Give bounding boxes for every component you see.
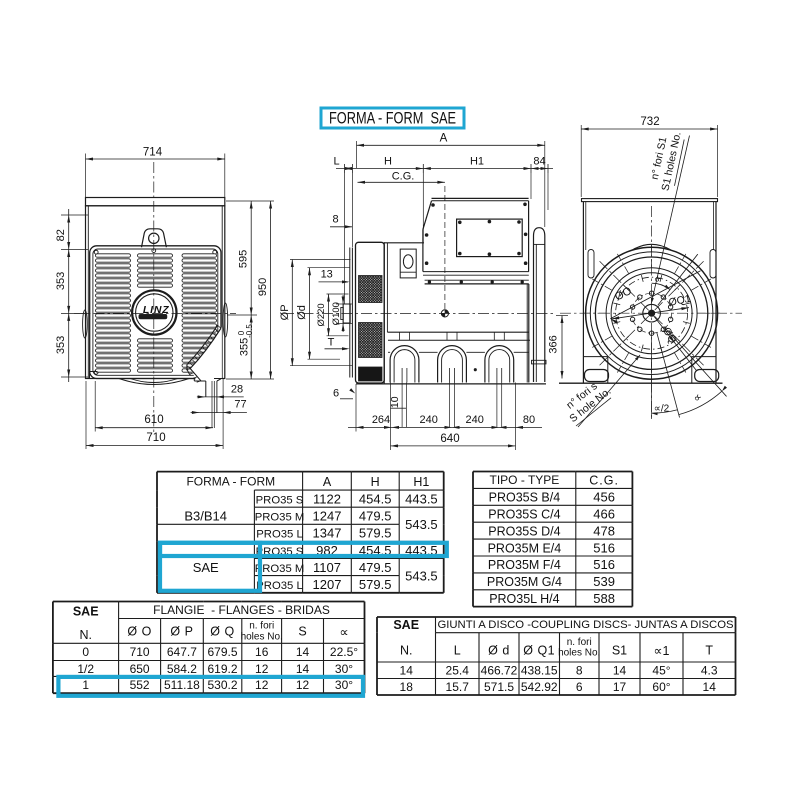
- svg-text:6: 6: [576, 680, 583, 694]
- svg-text:588: 588: [593, 591, 615, 606]
- svg-text:PRO35 L: PRO35 L: [256, 529, 302, 541]
- svg-text:SAE: SAE: [393, 618, 419, 632]
- svg-text:511.18: 511.18: [164, 678, 200, 692]
- svg-text:N.: N.: [79, 628, 92, 642]
- svg-text:456: 456: [593, 490, 615, 505]
- svg-text:holes No.: holes No.: [558, 648, 600, 659]
- svg-text:714: 714: [143, 147, 163, 159]
- svg-text:FORMA - FORM: FORMA - FORM: [186, 474, 275, 488]
- svg-text:Ø O: Ø O: [127, 624, 151, 638]
- svg-text:∝/2: ∝/2: [654, 404, 670, 415]
- svg-text:H: H: [371, 475, 380, 489]
- svg-text:950: 950: [257, 278, 269, 296]
- svg-text:PRO35L H/4: PRO35L H/4: [489, 592, 559, 606]
- svg-text:579.5: 579.5: [359, 577, 392, 592]
- svg-text:GIUNTI A DISCO -COUPLING DISCS: GIUNTI A DISCO -COUPLING DISCS- JUNTAS A…: [437, 619, 734, 631]
- svg-text:579.5: 579.5: [359, 526, 392, 541]
- svg-text:30°: 30°: [335, 678, 353, 692]
- svg-text:619.2: 619.2: [207, 662, 237, 676]
- svg-text:Ø220: Ø220: [316, 303, 327, 326]
- svg-text:516: 516: [593, 540, 615, 555]
- svg-text:14: 14: [296, 645, 310, 659]
- svg-text:1/2: 1/2: [77, 662, 94, 676]
- svg-text:571.5: 571.5: [484, 680, 514, 694]
- svg-text:60°: 60°: [652, 680, 670, 694]
- svg-text:0: 0: [82, 645, 89, 659]
- svg-text:6: 6: [333, 387, 339, 399]
- svg-text:640: 640: [440, 433, 459, 445]
- svg-text:PRO35M F/4: PRO35M F/4: [488, 558, 561, 572]
- svg-text:12: 12: [255, 678, 269, 692]
- svg-text:353: 353: [55, 272, 67, 290]
- svg-text:PRO35S C/4: PRO35S C/4: [488, 508, 560, 522]
- svg-text:8: 8: [332, 213, 338, 225]
- svg-text:L: L: [454, 644, 461, 658]
- svg-text:H: H: [384, 156, 392, 168]
- svg-text:1207: 1207: [313, 577, 342, 592]
- svg-text:n. fori: n. fori: [249, 621, 274, 632]
- svg-text:14: 14: [613, 663, 627, 677]
- svg-text:543.5: 543.5: [405, 517, 438, 532]
- svg-text:Ø100: Ø100: [331, 302, 342, 325]
- svg-text:552: 552: [130, 678, 150, 692]
- svg-text:542.92: 542.92: [521, 680, 558, 694]
- svg-text:∝1: ∝1: [654, 644, 670, 658]
- svg-text:466: 466: [593, 507, 615, 522]
- svg-text:14: 14: [400, 663, 414, 677]
- svg-text:12: 12: [255, 662, 269, 676]
- svg-text:PRO35S D/4: PRO35S D/4: [488, 524, 560, 538]
- svg-text:355: 355: [239, 338, 251, 356]
- svg-text:539: 539: [593, 574, 615, 589]
- svg-text:FLANGIE - FLANGES - BRIDAS: FLANGIE - FLANGES - BRIDAS: [153, 603, 330, 617]
- svg-text:B3/B14: B3/B14: [184, 509, 227, 524]
- svg-text:H1: H1: [470, 156, 484, 168]
- svg-text:240: 240: [466, 414, 484, 426]
- svg-text:ØP: ØP: [279, 304, 291, 320]
- svg-text:C.G.: C.G.: [589, 474, 619, 488]
- svg-text:PRO35M G/4: PRO35M G/4: [487, 575, 562, 589]
- svg-text:650: 650: [130, 662, 150, 676]
- svg-text:264: 264: [372, 414, 390, 426]
- svg-text:Ø Q: Ø Q: [210, 624, 234, 638]
- svg-text:T: T: [705, 644, 713, 658]
- svg-text:14: 14: [703, 680, 717, 694]
- svg-text:13: 13: [321, 268, 333, 280]
- svg-text:478: 478: [593, 523, 615, 538]
- svg-text:SAE: SAE: [73, 604, 99, 618]
- svg-text:Ø P: Ø P: [170, 624, 193, 638]
- svg-text:PRO35M E/4: PRO35M E/4: [488, 541, 562, 555]
- svg-text:A: A: [440, 133, 448, 145]
- svg-text:1122: 1122: [313, 492, 341, 507]
- svg-text:479.5: 479.5: [359, 560, 392, 575]
- svg-text:PRO35 M: PRO35 M: [255, 512, 305, 524]
- svg-text:1: 1: [82, 678, 89, 692]
- svg-text:FORMA - FORM SAE: FORMA - FORM SAE: [329, 110, 456, 128]
- svg-text:TIPO - TYPE: TIPO - TYPE: [490, 473, 560, 487]
- svg-text:240: 240: [420, 414, 438, 426]
- svg-text:PRO35 L: PRO35 L: [256, 580, 302, 592]
- svg-text:82: 82: [55, 229, 67, 241]
- svg-text:679.5: 679.5: [207, 645, 237, 659]
- svg-text:4.3: 4.3: [701, 663, 718, 677]
- svg-text:366: 366: [548, 335, 560, 353]
- svg-text:30°: 30°: [335, 662, 353, 676]
- svg-text:479.5: 479.5: [359, 509, 392, 524]
- svg-text:holes No.: holes No.: [241, 631, 283, 642]
- svg-text:A: A: [323, 475, 332, 489]
- svg-text:595: 595: [237, 250, 249, 268]
- svg-text:PRO35 M: PRO35 M: [255, 563, 305, 575]
- svg-text:22.5°: 22.5°: [330, 645, 358, 659]
- svg-text:12: 12: [296, 678, 310, 692]
- svg-text:438.15: 438.15: [521, 663, 558, 677]
- svg-text:543.5: 543.5: [405, 568, 438, 583]
- svg-text:Ø d: Ø d: [488, 644, 510, 658]
- svg-text:28: 28: [231, 384, 243, 396]
- svg-text:-0.5: -0.5: [245, 324, 254, 338]
- svg-text:732: 732: [640, 116, 659, 128]
- svg-text:353: 353: [55, 336, 67, 354]
- svg-text:1347: 1347: [313, 526, 342, 541]
- svg-text:1107: 1107: [313, 560, 341, 575]
- svg-text:H1: H1: [413, 475, 429, 489]
- svg-text:647.7: 647.7: [167, 645, 197, 659]
- svg-text:710: 710: [130, 645, 150, 659]
- svg-text:80: 80: [523, 414, 535, 426]
- svg-text:∝: ∝: [339, 624, 348, 639]
- svg-text:N.: N.: [400, 644, 413, 658]
- svg-text:8: 8: [576, 663, 583, 677]
- svg-text:PRO35S B/4: PRO35S B/4: [489, 491, 561, 505]
- svg-text:15.7: 15.7: [446, 680, 470, 694]
- svg-text:454.5: 454.5: [359, 492, 392, 507]
- svg-text:Ød: Ød: [296, 305, 308, 320]
- svg-text:1247: 1247: [313, 509, 342, 524]
- svg-text:Ø Q1: Ø Q1: [523, 644, 555, 658]
- svg-text:530.2: 530.2: [207, 678, 237, 692]
- svg-text:L: L: [333, 156, 339, 168]
- svg-text:SAE: SAE: [193, 560, 219, 575]
- svg-text:466.72: 466.72: [481, 663, 518, 677]
- svg-text:610: 610: [144, 414, 163, 426]
- svg-text:18: 18: [400, 680, 414, 694]
- svg-text:516: 516: [593, 557, 615, 572]
- svg-text:45°: 45°: [652, 663, 670, 677]
- svg-text:77: 77: [234, 399, 246, 411]
- svg-text:S: S: [298, 624, 306, 638]
- svg-text:17: 17: [613, 680, 627, 694]
- svg-text:710: 710: [146, 432, 165, 444]
- svg-text:584.2: 584.2: [167, 662, 197, 676]
- svg-text:T: T: [328, 336, 335, 348]
- svg-text:25.4: 25.4: [446, 663, 470, 677]
- svg-text:16: 16: [255, 645, 269, 659]
- svg-text:S1: S1: [612, 644, 627, 658]
- svg-text:14: 14: [296, 662, 310, 676]
- svg-text:C.G.: C.G.: [392, 170, 415, 182]
- svg-text:PRO35 S: PRO35 S: [256, 495, 304, 507]
- svg-text:84: 84: [533, 156, 545, 168]
- svg-text:443.5: 443.5: [405, 492, 438, 507]
